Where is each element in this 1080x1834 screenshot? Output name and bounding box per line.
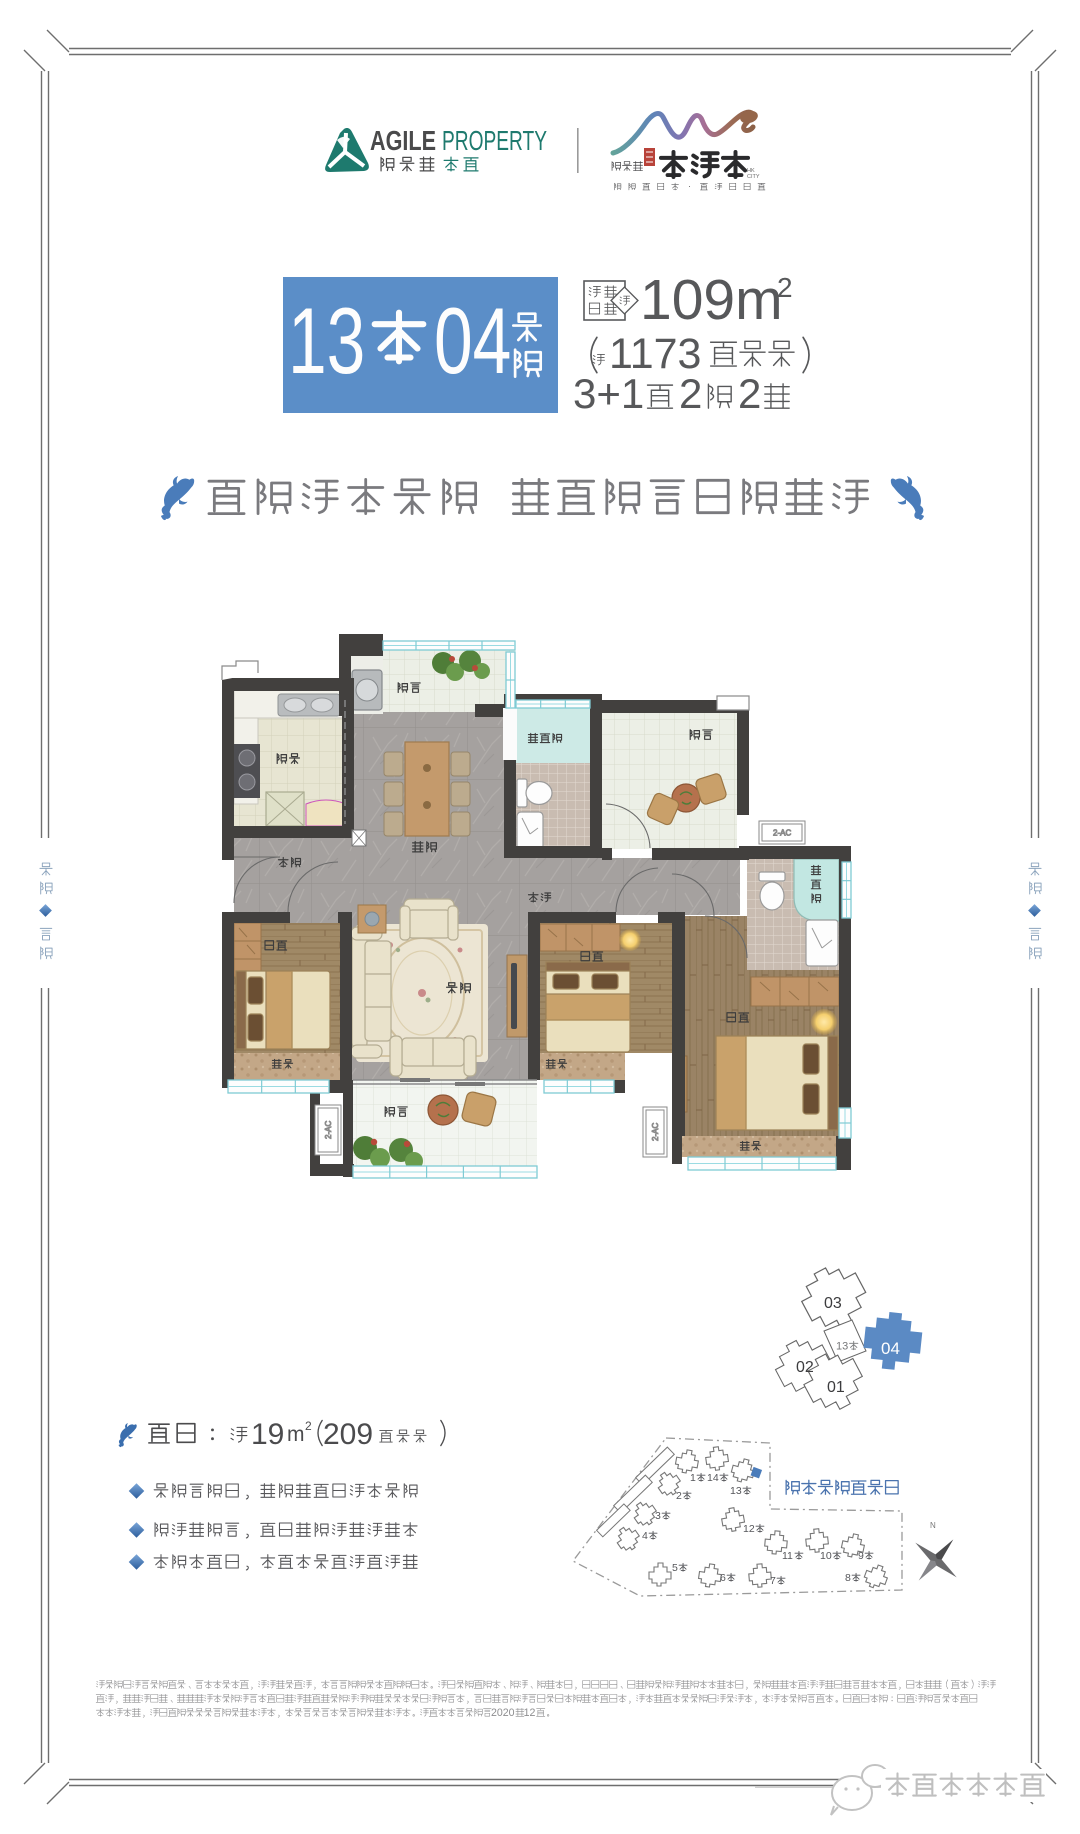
svg-text:2: 2 (777, 272, 793, 303)
svg-text:12: 12 (524, 1707, 536, 1719)
svg-text:5: 5 (672, 1562, 678, 1574)
svg-text:04: 04 (434, 288, 511, 394)
svg-text:8: 8 (845, 1572, 851, 1584)
svg-text:10: 10 (820, 1550, 832, 1562)
svg-text:m: m (287, 1423, 305, 1446)
svg-text:2: 2 (738, 370, 761, 417)
svg-text:2: 2 (305, 1419, 312, 1433)
svg-text:04: 04 (881, 1339, 900, 1358)
svg-text:4: 4 (642, 1530, 648, 1542)
svg-text:2-AC: 2-AC (324, 1121, 333, 1139)
svg-text:2: 2 (679, 370, 702, 417)
svg-text:12: 12 (743, 1523, 755, 1535)
svg-text:2-AC: 2-AC (773, 829, 791, 838)
svg-text:209: 209 (323, 1418, 373, 1451)
svg-text:19: 19 (251, 1418, 284, 1451)
svg-text:14: 14 (707, 1472, 719, 1484)
svg-text:1: 1 (690, 1472, 696, 1484)
svg-text:01: 01 (827, 1379, 845, 1396)
svg-text:PROPERTY: PROPERTY (442, 125, 547, 156)
svg-text:9: 9 (858, 1550, 864, 1562)
svg-text:13: 13 (836, 1341, 848, 1353)
svg-text:6: 6 (720, 1572, 726, 1584)
svg-text:7: 7 (770, 1575, 776, 1587)
svg-text:2: 2 (676, 1490, 682, 1502)
svg-text:N: N (930, 1521, 936, 1530)
svg-text:11: 11 (782, 1550, 793, 1562)
svg-text:3+1: 3+1 (573, 370, 644, 417)
svg-text:2-AC: 2-AC (651, 1123, 660, 1141)
svg-text:2020: 2020 (491, 1707, 515, 1719)
svg-text:13: 13 (288, 288, 365, 394)
svg-text:03: 03 (824, 1295, 842, 1312)
svg-text:CITY: CITY (747, 174, 760, 180)
svg-text:13: 13 (730, 1485, 742, 1497)
svg-text:AGILE: AGILE (370, 125, 436, 156)
svg-text:109m: 109m (640, 268, 783, 332)
svg-text:3: 3 (655, 1510, 661, 1522)
svg-text:02: 02 (796, 1359, 814, 1376)
